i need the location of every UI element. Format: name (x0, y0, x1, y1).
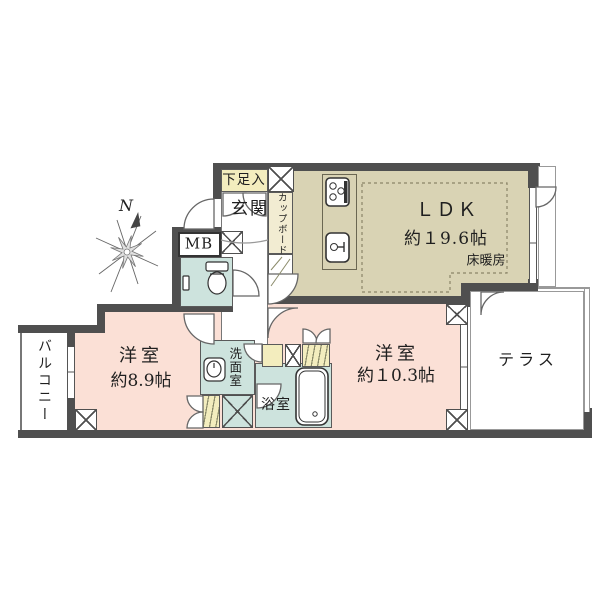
toilet-icon (183, 262, 228, 294)
washer-door-upper (187, 396, 203, 412)
cupboard-label: カップボード (276, 193, 286, 256)
bedroom2-name-label: 洋室 (375, 345, 419, 366)
ldk-size-label: 約１9.6帖 (404, 230, 488, 250)
compass-needle (131, 213, 140, 228)
bedroom1-size-label: 約8.9帖 (110, 372, 171, 392)
compass-icon (96, 213, 158, 292)
balcony-label: バルコニー (37, 339, 51, 424)
entrance-label: 玄関 (231, 200, 269, 220)
bathroom-label: 浴室 (261, 397, 291, 413)
stove-icon (326, 178, 349, 206)
shoe-box-label: 下足入 (222, 173, 266, 189)
washroom-label: 洗面室 (228, 347, 241, 388)
bedroom1-name-label: 洋室 (119, 347, 163, 368)
bathtub-icon (296, 368, 328, 425)
ldk-name-label: ＬＤＫ (415, 200, 478, 222)
front-door-arc (184, 199, 214, 229)
entrance-step-line (221, 240, 268, 243)
meter-box-label: MB (185, 235, 213, 252)
washbasin-icon (204, 358, 225, 381)
washer-door-lower (187, 412, 203, 428)
terrace-door-arc (481, 292, 504, 315)
floor-heating-label: 床暖房 (466, 255, 505, 270)
closet-door-left (303, 329, 317, 343)
closet-door-right (316, 329, 330, 343)
bedroom2-door-arc (268, 308, 298, 338)
north-label: N (119, 197, 133, 215)
floor-plan: N 下足入 玄関 MB カップボード ＬＤＫ 約１9.6帖 床暖房 洋室 約8.… (0, 0, 600, 600)
floorplan-graphics (0, 0, 600, 600)
door-arcs (184, 187, 556, 428)
ldk-balcony-door-arc (536, 187, 556, 207)
washroom-door-arc (244, 344, 262, 362)
terrace-label: テラス (498, 351, 558, 369)
bedroom2-size-label: 約１0.3帖 (357, 367, 435, 387)
ldk-door-arc (268, 274, 298, 304)
sink-icon (326, 233, 349, 262)
toilet-door-arc (233, 270, 259, 296)
bedroom1-door-arc (184, 314, 214, 344)
